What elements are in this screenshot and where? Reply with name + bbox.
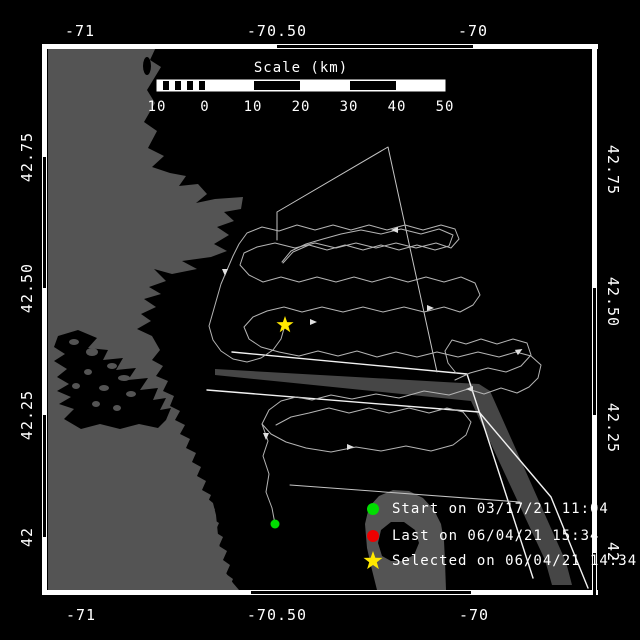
harbor-island	[86, 348, 98, 356]
harbor-island	[72, 383, 80, 389]
latitude-label-left: 42.75	[18, 132, 36, 182]
harbor-island	[107, 363, 117, 369]
scale-bar-segment	[163, 81, 169, 90]
harbor-island	[69, 339, 79, 345]
harbor-island	[84, 369, 92, 375]
latitude-label-left: 42.25	[18, 390, 36, 440]
scale-bar-segment	[254, 81, 300, 90]
harbor-island	[126, 391, 136, 397]
map-canvas[interactable]	[0, 0, 640, 640]
frame-band-black	[593, 288, 596, 415]
scale-bar-segment	[187, 81, 193, 90]
frame-band-black	[277, 45, 473, 48]
legend-label: Start on 03/17/21 11:04	[392, 501, 609, 517]
harbor-island	[113, 405, 121, 411]
scale-bar-tick-label: 10	[244, 99, 263, 115]
legend-label: Last on 06/04/21 15:34	[392, 528, 599, 544]
scale-bar-segment	[350, 81, 396, 90]
legend-last-dot-icon	[367, 530, 379, 542]
frame-band-black	[43, 415, 46, 537]
legend-label: Selected on 06/04/21 14:34	[392, 553, 637, 569]
latitude-label-left: 42.50	[18, 263, 36, 313]
scale-bar-tick-label: 50	[436, 99, 455, 115]
longitude-label-top: -70	[458, 22, 488, 40]
start-position-marker[interactable]	[271, 520, 280, 529]
scale-bar-title: Scale (km)	[254, 60, 348, 76]
legend-start-dot-icon	[367, 503, 379, 515]
scale-bar-tick-label: 0	[200, 99, 209, 115]
longitude-label-top: -71	[65, 22, 95, 40]
latitude-label-right: 42.25	[604, 403, 622, 453]
longitude-label-bottom: -70	[459, 606, 489, 624]
frame-band-black	[251, 591, 471, 594]
scale-bar-tick-label: 30	[340, 99, 359, 115]
latitude-label-right: 42.50	[604, 277, 622, 327]
coastal-pond	[143, 57, 151, 75]
longitude-label-bottom: -70.50	[247, 606, 307, 624]
latitude-label-right: 42.75	[604, 145, 622, 195]
scale-bar-segment	[199, 81, 205, 90]
frame-band-black	[43, 157, 46, 288]
scale-bar-tick-label: 40	[388, 99, 407, 115]
latitude-label-left: 42	[18, 527, 36, 547]
scale-bar-tick-label: 20	[292, 99, 311, 115]
harbor-island	[99, 385, 109, 391]
scale-bar-tick-label: 10	[148, 99, 167, 115]
longitude-label-top: -70.50	[247, 22, 307, 40]
longitude-label-bottom: -71	[66, 606, 96, 624]
track-map-window: -71-70.50-70-71-70.50-7042.7542.5042.254…	[0, 0, 640, 640]
scale-bar-segment	[175, 81, 181, 90]
harbor-island	[118, 375, 130, 381]
harbor-island	[92, 401, 100, 407]
